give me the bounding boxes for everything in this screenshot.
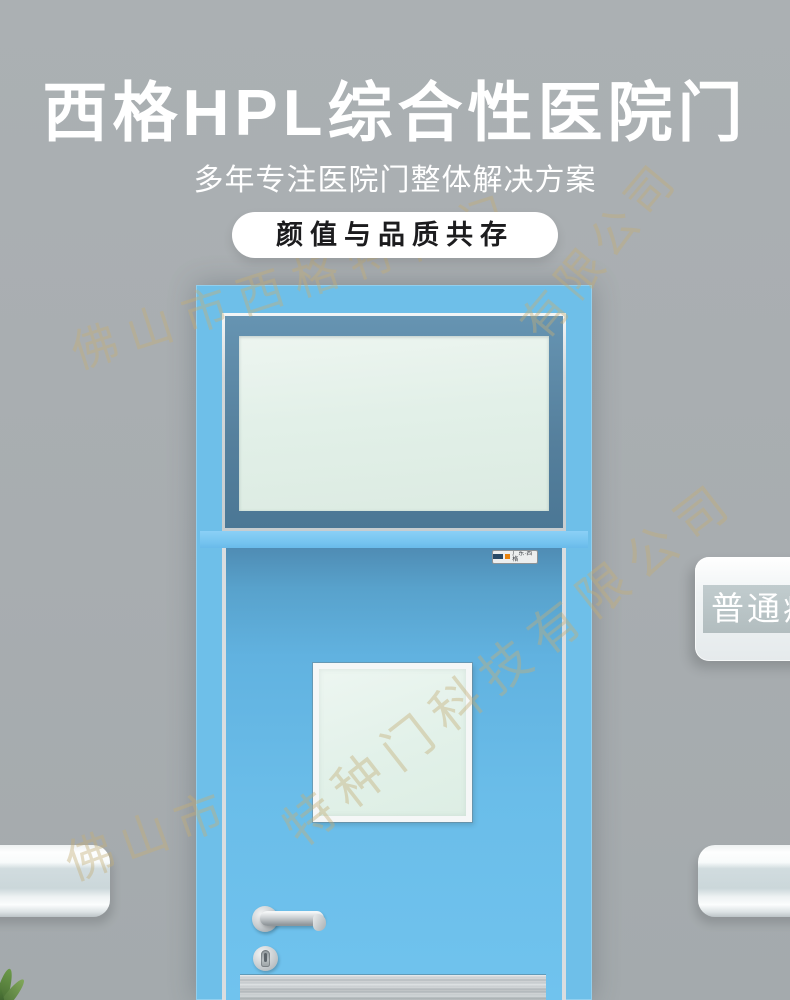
wall-background: 西格HPL综合性医院门 多年专注医院门整体解决方案 颜值与品质共存 佛山市西格特… (0, 0, 790, 1000)
door-lock (253, 946, 278, 971)
door-brand-plate: 广东·西格 (492, 550, 538, 564)
door-leaf: 广东·西格 (222, 548, 566, 1000)
brand-accent-icon (505, 554, 511, 559)
brand-plate-row: 广东·西格 (493, 551, 537, 563)
wall-guard-right (698, 845, 790, 917)
kick-plate (240, 975, 546, 1000)
page-subtitle: 多年专注医院门整体解决方案 (0, 155, 790, 199)
door-divider-rail (200, 531, 588, 548)
brand-plate-label: 广东·西格 (512, 551, 537, 563)
transom-glass (239, 336, 549, 511)
brand-logo-icon (493, 554, 503, 559)
wall-guard-left (0, 845, 110, 917)
room-sign-label: 普通病房 (703, 585, 790, 633)
room-sign-band: 普通病房 (703, 585, 790, 633)
lock-cylinder-icon (261, 950, 270, 967)
room-sign: 普通病房 (695, 557, 790, 661)
quality-badge: 颜值与品质共存 (232, 212, 558, 258)
transom-bevel (225, 316, 563, 528)
door-handle-lever (260, 911, 324, 926)
door-vision-window (313, 663, 472, 822)
transom-window (222, 313, 566, 531)
page-title: 西格HPL综合性医院门 (0, 60, 790, 154)
plant-leaf (0, 962, 40, 1000)
